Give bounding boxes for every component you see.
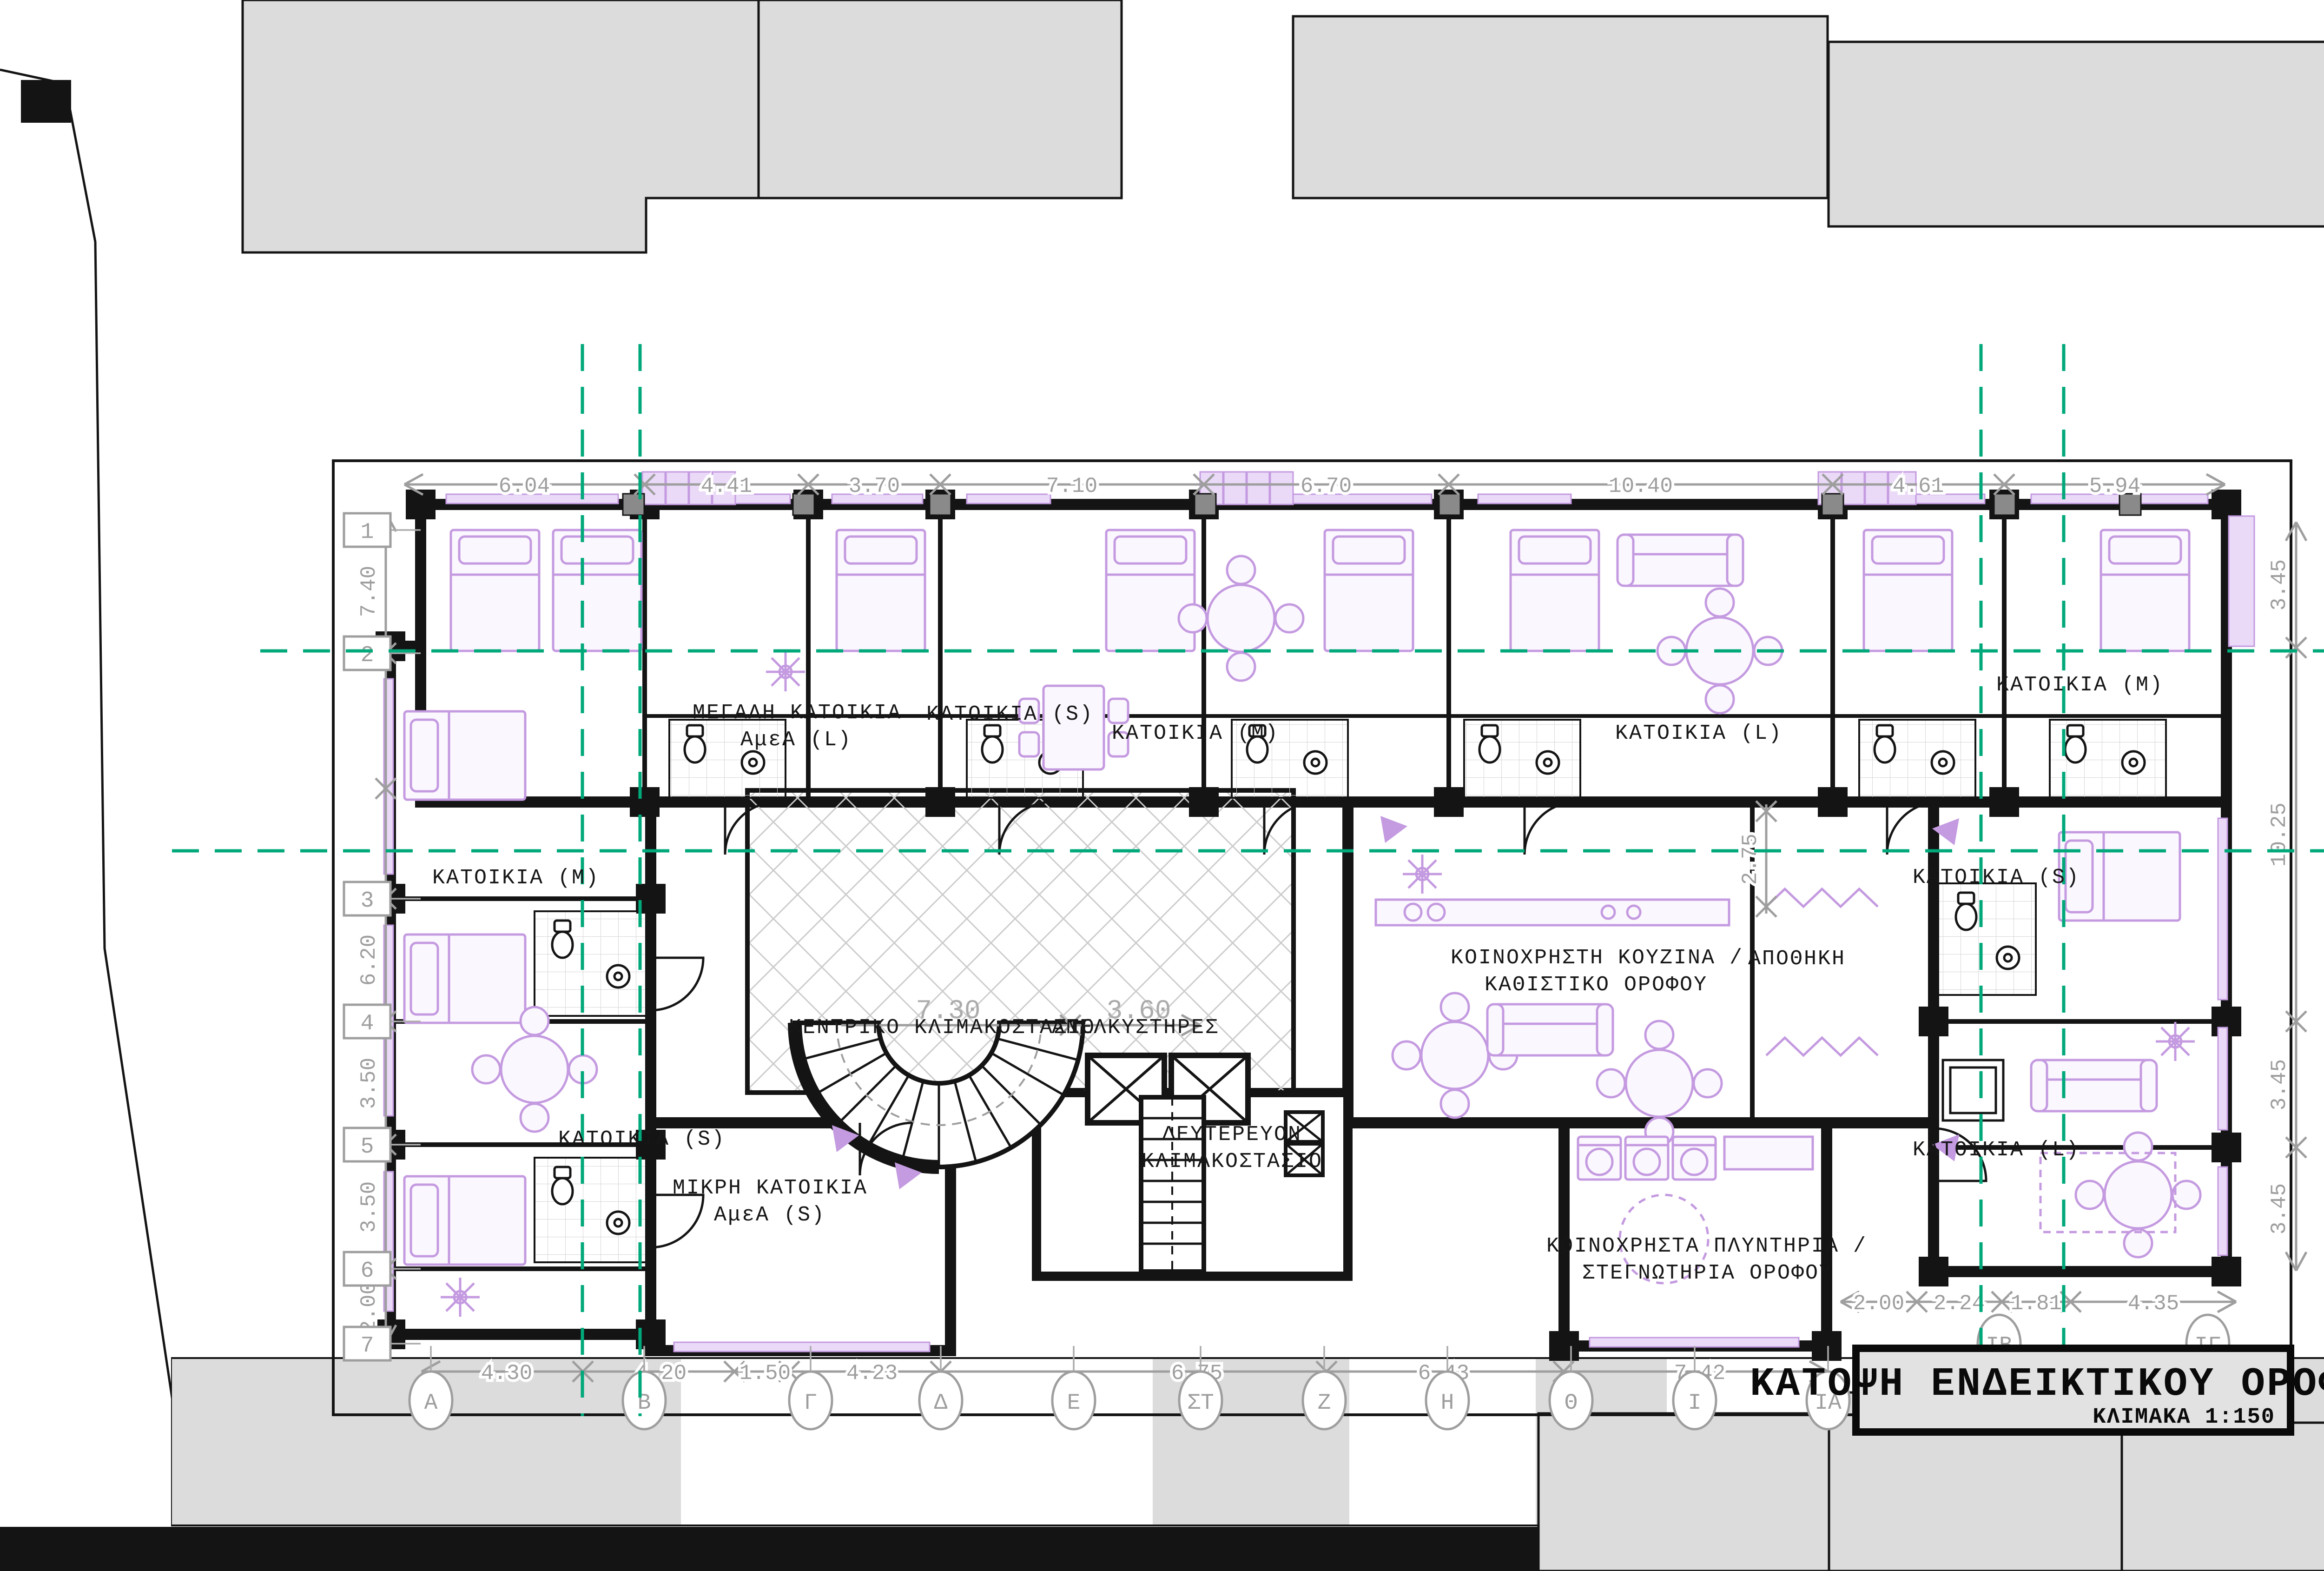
room-label-main-stair: ΚΕΝΤΡΙΚΟ ΚΛΙΜΑΚΟΣΤΑΣΙΟ xyxy=(789,1016,1096,1040)
neighbor-bottom-1 xyxy=(1538,1413,1829,1571)
room-label-unit-l-right: ΚΑΤΟΙΚΙΑ (L) xyxy=(1913,1138,2080,1162)
grid-bubble-col: Η xyxy=(1441,1391,1454,1416)
dim-label: 5.94 xyxy=(2089,474,2140,498)
grid-bubble-col: Ι xyxy=(1688,1391,1702,1416)
room-label-storage: ΑΠΟΘΗΚΗ xyxy=(1748,947,1846,971)
street-edge-left xyxy=(0,70,179,1444)
room-label-unit-s-left: ΚΑΤΟΙΚΙΑ (S) xyxy=(558,1127,726,1151)
dim-label: 4.23 xyxy=(846,1361,898,1385)
dim-label: 3.50 xyxy=(357,1181,381,1233)
room-label-small-unit: ΜΙΚΡΗ ΚΑΤΟΙΚΙΑ xyxy=(673,1176,868,1200)
dim-label: 4.41 xyxy=(701,474,752,498)
grid-bubble-row: 4 xyxy=(361,1011,374,1036)
dim-label: 2.75 xyxy=(1738,834,1763,885)
dim-label: 4.30 xyxy=(481,1361,532,1385)
grid-bubble-row: 5 xyxy=(361,1134,374,1160)
grid-bubble-row: 7 xyxy=(361,1333,374,1359)
drawing-scale: ΚΛΙΜΑΚΑ 1:150 xyxy=(2093,1405,2275,1430)
room-label-common-kitchen: ΚΟΙΝΟΧΡΗΣΤΗ ΚΟΥΖΙΝΑ / xyxy=(1451,946,1743,970)
grid-bubble-row: 2 xyxy=(361,643,374,668)
room-label-unit-s-top: ΚΑΤΟΙΚΙΑ (S) xyxy=(926,703,1094,726)
grid-bubble-row: 1 xyxy=(361,520,374,545)
room-label-unit-m-left: ΚΑΤΟΙΚΙΑ (M) xyxy=(432,866,600,890)
laundry-counter xyxy=(1724,1137,1813,1169)
dim-label: 3.45 xyxy=(2267,1059,2291,1110)
dim-label: 3.70 xyxy=(849,474,900,498)
dim-label: 10.25 xyxy=(2267,802,2291,867)
neighbor-building-top-middle xyxy=(1293,16,1828,198)
neighbor-building-top-left-2 xyxy=(759,0,1122,198)
balcony-right xyxy=(2229,516,2254,646)
neighbor-building-top-right-1 xyxy=(1829,42,2324,226)
room-label-laundry: ΚΟΙΝΟΧΡΗΣΤΑ ΠΛΥΝΤΗΡΙΑ / xyxy=(1546,1234,1867,1258)
neighbor-bottom-3 xyxy=(2122,1423,2324,1571)
dim-label: 6.70 xyxy=(1301,474,1352,498)
dim-label: 3.50 xyxy=(357,1058,381,1109)
room-label-unit-l-top: ΚΑΤΟΙΚΙΑ (L) xyxy=(1615,722,1783,745)
dim-label: 6.20 xyxy=(357,935,381,986)
dim-label: 1.81 xyxy=(2011,1292,2062,1316)
grid-bubble-row: 6 xyxy=(361,1259,374,1284)
dim-label: 4.35 xyxy=(2128,1292,2179,1316)
street-bottom-left xyxy=(0,1527,1538,1571)
dim-label: 2.00 xyxy=(1853,1292,1904,1316)
dim-label: 1.50 xyxy=(739,1361,791,1385)
dim-label: 2.24 xyxy=(1934,1292,1985,1316)
dim-label: 7.40 xyxy=(357,566,381,617)
dim-label: 7.10 xyxy=(1046,474,1097,498)
dim-label: 4.61 xyxy=(1893,474,1944,498)
dim-label: 6.04 xyxy=(499,474,550,498)
grid-bubble-col: Θ xyxy=(1565,1391,1578,1416)
room-label-unit-m-top: ΚΑΤΟΙΚΙΑ (M) xyxy=(1112,722,1279,745)
grid-bubble-col: ΣΤ xyxy=(1187,1391,1214,1416)
room-label-unit-m-top-right: ΚΑΤΟΙΚΙΑ (M) xyxy=(1996,673,2164,697)
grid-bubble-col: Ζ xyxy=(1318,1391,1331,1416)
kitchen-counter xyxy=(1376,900,1729,925)
grid-bubble-row: 3 xyxy=(361,888,374,914)
dim-label: 3.45 xyxy=(2267,559,2291,610)
floor-plan-drawing: 6.04 4.41 3.70 7.10 6.70 10.40 4.61 5.94… xyxy=(0,0,2324,1571)
dim-label: 10.40 xyxy=(1609,474,1673,498)
room-label-small-unit-2: ΑμεΑ (S) xyxy=(714,1203,825,1227)
room-label-secondary-stair: ΔΕΥΤΕΡΕΥΟΝ xyxy=(1162,1123,1302,1147)
room-label-large-unit: ΜΕΓΑΛΗ ΚΑΤΟΙΚΙΑ xyxy=(693,701,902,725)
room-label-unit-s-right: ΚΑΤΟΙΚΙΑ (S) xyxy=(1913,866,2080,889)
dim-label: 3.45 xyxy=(2267,1183,2291,1234)
neighbor-building-top-left xyxy=(243,0,759,252)
room-label-common-kitchen-2: ΚΑΘΙΣΤΙΚΟ ΟΡΟΦΟΥ xyxy=(1485,973,1708,997)
room-label-secondary-stair-2: ΚΛΙΜΑΚΟΣΤΑΣΙΟ xyxy=(1142,1150,1323,1173)
room-label-large-unit-2: ΑμεΑ (L) xyxy=(740,728,852,752)
grid-bubble-col: Ε xyxy=(1067,1391,1081,1416)
grid-bubble-col: Α xyxy=(424,1391,438,1416)
street-marker-block xyxy=(21,80,71,123)
room-label-laundry-2: ΣΤΕΓΝΩΤΗΡΙΑ ΟΡΟΦΟΥ xyxy=(1582,1261,1833,1285)
dim-label: 2.00 xyxy=(357,1282,381,1333)
grid-bubble-col: Γ xyxy=(804,1391,818,1416)
drawing-title: ΚΑΤΟΨΗ ΕΝΔΕΙΚΤΙΚΟΥ ΟΡΟΦΟΥ xyxy=(1750,1361,2324,1407)
grid-bubble-col: Δ xyxy=(934,1391,948,1416)
room-label-elevators: ΑΝΕΛΚΥΣΤΗΡΕΣ xyxy=(1052,1016,1219,1040)
